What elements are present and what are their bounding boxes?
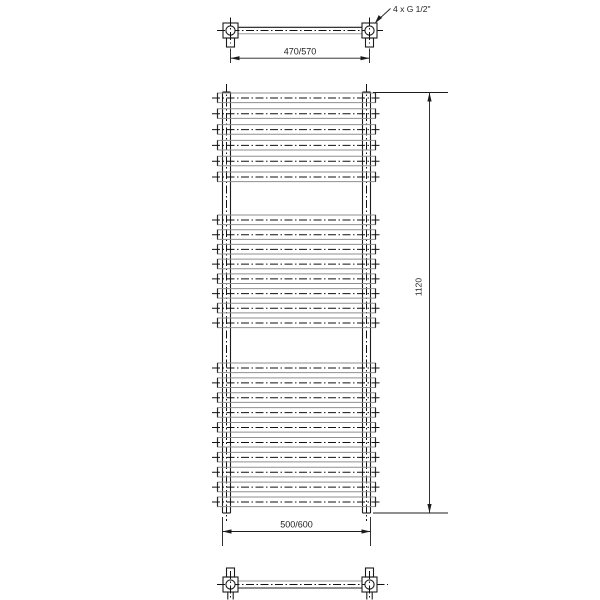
rung (212, 497, 381, 507)
bottom-view-right-fitting (362, 568, 377, 600)
dimension-arrow-icon (361, 56, 370, 60)
top-width-label: 470/570 (284, 47, 317, 57)
rung (212, 303, 381, 313)
dimension-arrow-icon (231, 56, 240, 60)
rung-field (212, 93, 381, 507)
connection-note-label: 4 x G 1/2" (393, 4, 431, 14)
rung (212, 125, 381, 135)
rung (212, 274, 381, 284)
dimension-bottom-width: 500/600 (223, 517, 371, 546)
top-view: 4 x G 1/2" 470/570 (217, 4, 431, 63)
rung (212, 378, 381, 388)
dimension-height: 1120 (373, 93, 448, 514)
dimension-arrow-icon (223, 529, 232, 533)
rung (212, 437, 381, 447)
rung (212, 215, 381, 225)
connection-note: 4 x G 1/2" (375, 4, 431, 24)
height-label: 1120 (414, 278, 424, 297)
rung (212, 109, 381, 119)
dimension-top-width: 470/570 (231, 47, 370, 64)
rung (212, 482, 381, 492)
rung (212, 467, 381, 477)
rung (212, 93, 381, 103)
top-view-left-fitting (223, 18, 238, 48)
leader-arrowhead-icon (375, 15, 382, 23)
bottom-view-left-fitting (223, 568, 238, 600)
rung (212, 318, 381, 328)
top-view-right-fitting (362, 18, 377, 48)
rung (212, 363, 381, 373)
rung (212, 289, 381, 299)
rung (212, 172, 381, 182)
dimension-arrow-icon (362, 529, 371, 533)
bottom-view (217, 568, 388, 600)
front-view: 1120 500/600 (212, 84, 448, 546)
rung (212, 408, 381, 418)
rung (212, 140, 381, 150)
rung (212, 259, 381, 269)
bottom-width-label: 500/600 (280, 520, 313, 530)
technical-drawing: 4 x G 1/2" 470/570 (0, 0, 600, 600)
rung (212, 452, 381, 462)
rung (212, 156, 381, 166)
rung (212, 230, 381, 240)
rung (212, 393, 381, 403)
dimension-arrow-icon (427, 504, 431, 513)
dimension-arrow-icon (427, 93, 431, 102)
rung (212, 423, 381, 433)
rung (212, 244, 381, 254)
